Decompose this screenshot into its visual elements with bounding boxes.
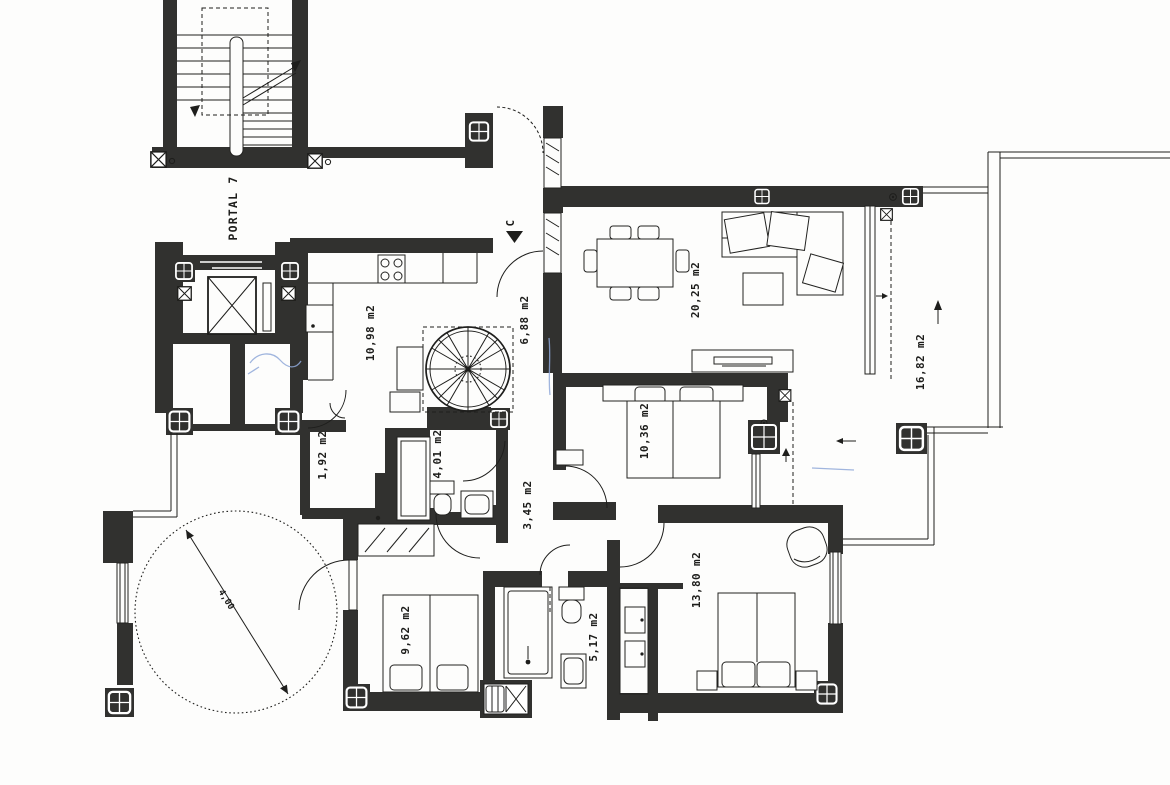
bathroom1-area-label: 4,01 m2	[431, 429, 444, 478]
living-room-furniture	[584, 212, 843, 372]
master-bedroom-area-label: 13,80 m2	[690, 552, 703, 608]
living-room-area-label: 20,25 m2	[689, 262, 702, 318]
turret-outline	[135, 511, 337, 713]
elevator	[200, 262, 271, 334]
tv-sideboard	[692, 350, 793, 372]
entrance-unit-label: C	[504, 219, 517, 226]
bedroom2-area-label: 10,36 m2	[638, 403, 651, 459]
corridor-area-label: 3,45 m2	[521, 480, 534, 529]
toilet-icon	[430, 481, 454, 494]
terrace-railings	[782, 152, 1170, 545]
spiral-staircase	[390, 327, 513, 412]
sink-icon	[561, 654, 586, 688]
turret-diameter-label: 4,00	[216, 588, 236, 612]
shaft-x-icon	[151, 152, 166, 167]
terrace-area-label: 16,82 m2	[914, 334, 927, 390]
coffee-table	[743, 273, 783, 305]
twin-bed	[673, 401, 720, 478]
bedroom3-furniture	[358, 524, 478, 692]
bathroom2-area-label: 5,17 m2	[587, 612, 600, 661]
dining-table	[597, 239, 673, 287]
bathroom2-fixtures	[504, 587, 586, 688]
closet	[358, 524, 434, 556]
bedroom3-area-label: 9,62 m2	[399, 605, 412, 654]
kitchen-sink-icon	[306, 305, 333, 332]
floor-plan-drawing: PORTAL 7 10,98 m2 6,88 m2 20,25 m2 16,82…	[0, 0, 1170, 785]
bedroom2-furniture	[603, 385, 743, 478]
laundry-area-label: 1,92 m2	[316, 430, 329, 479]
hall-area-label: 6,88 m2	[518, 295, 531, 344]
shower	[397, 437, 430, 520]
portal-label: PORTAL 7	[226, 176, 240, 241]
kitchen-area-label: 10,98 m2	[364, 305, 377, 361]
column-icon	[467, 119, 492, 144]
entrance-arrow-icon	[506, 231, 523, 243]
armchair	[783, 523, 832, 572]
floor-plan-page: PORTAL 7 10,98 m2 6,88 m2 20,25 m2 16,82…	[0, 0, 1170, 785]
toilet-icon	[559, 587, 584, 600]
staircase	[177, 8, 301, 156]
entrance-door-swing	[497, 107, 543, 153]
